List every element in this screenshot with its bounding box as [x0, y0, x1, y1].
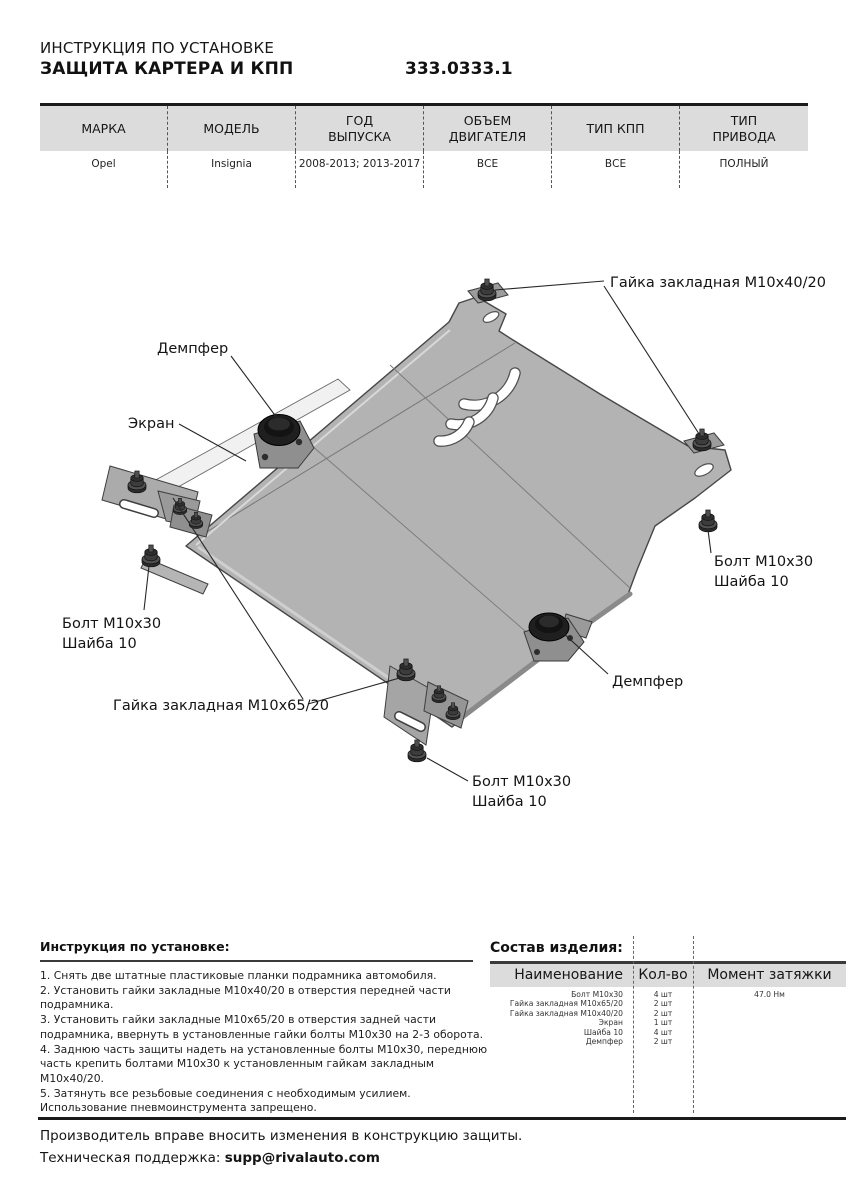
- composition-section: Состав изделия: Наименование Кол-во Моме…: [490, 940, 846, 1047]
- spec-col-header: ТИП ПРИВОДА: [680, 106, 808, 151]
- install-steps: 1. Снять две штатные пластиковые планки …: [40, 969, 490, 1116]
- composition-heading: Состав изделия:: [490, 940, 846, 956]
- table-row: Гайка закладная М10х65/20 2 шт: [490, 999, 846, 1009]
- table-row: Болт М10х30 4 шт 47.0 Нм: [490, 990, 846, 1000]
- footer-divider: [38, 1117, 846, 1120]
- spec-col-header: ГОД ВЫПУСКА: [296, 106, 424, 151]
- callout-right-washer: Шайба 10: [714, 574, 789, 590]
- footer-disclaimer: Производитель вправе вносить изменения в…: [40, 1128, 522, 1144]
- composition-column-divider: [693, 936, 694, 1113]
- spec-value-gearbox: ВСЕ: [552, 151, 680, 188]
- callout-embedded-nut-m10x40: Гайка закладная М10х40/20: [610, 275, 826, 291]
- table-row: Гайка закладная М10х40/20 2 шт: [490, 1009, 846, 1019]
- install-divider: [40, 960, 473, 962]
- install-heading: Инструкция по установке:: [40, 939, 495, 954]
- table-row: Шайба 10 4 шт: [490, 1028, 846, 1038]
- install-step: 5. Затянуть все резьбовые соединения с н…: [40, 1087, 490, 1116]
- install-instructions: Инструкция по установке: 1. Снять две шт…: [40, 939, 495, 1116]
- left-bolt-m10x30: [142, 545, 160, 567]
- spec-col-header: МАРКА: [40, 106, 168, 151]
- composition-col-name: Наименование: [490, 967, 633, 983]
- composition-header-row: Наименование Кол-во Момент затяжки: [490, 964, 846, 987]
- spec-value-engine: ВСЕ: [424, 151, 552, 188]
- install-step: 3. Установить гайки закладные М10х65/20 …: [40, 1013, 490, 1042]
- install-step: 2. Установить гайки закладные М10х40/20 …: [40, 984, 490, 1013]
- damper-front: [254, 415, 314, 469]
- callout-bottom-washer: Шайба 10: [472, 794, 547, 810]
- spec-value-brand: Opel: [40, 151, 168, 188]
- callout-embedded-nut-m10x65: Гайка закладная М10х65/20: [113, 698, 329, 714]
- footer-support: Техническая поддержка: supp@rivalauto.co…: [40, 1150, 380, 1166]
- composition-column-divider: [633, 936, 634, 1113]
- right-bolt-m10x30: [699, 510, 717, 532]
- composition-col-torque: Момент затяжки: [693, 967, 846, 983]
- footer-support-label: Техническая поддержка:: [40, 1150, 225, 1166]
- callout-heat-shield: Экран: [128, 416, 174, 432]
- callout-damper-front: Демпфер: [157, 341, 228, 357]
- instruction-sheet: ИНСТРУКЦИЯ ПО УСТАНОВКЕ ЗАЩИТА КАРТЕРА И…: [0, 0, 849, 1200]
- vehicle-spec-table: МАРКА МОДЕЛЬ ГОД ВЫПУСКА ОБЪЕМ ДВИГАТЕЛЯ…: [40, 103, 808, 188]
- callout-left-bolt: Болт М10х30: [62, 616, 161, 632]
- table-row: Демпфер 2 шт: [490, 1037, 846, 1047]
- doc-type-title: ИНСТРУКЦИЯ ПО УСТАНОВКЕ: [40, 39, 274, 57]
- support-email: supp@rivalauto.com: [225, 1150, 380, 1166]
- skid-plate-body: [186, 297, 731, 727]
- part-number: 333.0333.1: [405, 59, 513, 79]
- install-step: 1. Снять две штатные пластиковые планки …: [40, 969, 490, 984]
- spec-col-header: ОБЪЕМ ДВИГАТЕЛЯ: [424, 106, 552, 151]
- product-name: ЗАЩИТА КАРТЕРА И КПП: [40, 59, 293, 79]
- skid-plate-diagram: Гайка закладная М10х40/20 Демпфер Экран …: [0, 255, 849, 830]
- callout-bottom-bolt: Болт М10х30: [472, 774, 571, 790]
- callout-damper-rear: Демпфер: [612, 674, 683, 690]
- table-row: Экран 1 шт: [490, 1018, 846, 1028]
- left-bracket: [102, 466, 212, 594]
- spec-col-header: МОДЕЛЬ: [168, 106, 296, 151]
- install-step: 4. Заднюю часть защиты надеть на установ…: [40, 1043, 490, 1087]
- spec-value-years: 2008-2013; 2013-2017: [296, 151, 424, 188]
- callout-right-bolt: Болт М10х30: [714, 554, 813, 570]
- composition-rows: Болт М10х30 4 шт 47.0 Нм Гайка закладная…: [490, 990, 846, 1048]
- callout-left-washer: Шайба 10: [62, 636, 137, 652]
- spec-col-header: ТИП КПП: [552, 106, 680, 151]
- spec-value-model: Insignia: [168, 151, 296, 188]
- spec-value-drive: ПОЛНЫЙ: [680, 151, 808, 188]
- composition-col-qty: Кол-во: [633, 967, 693, 983]
- damper-rear: [524, 613, 592, 661]
